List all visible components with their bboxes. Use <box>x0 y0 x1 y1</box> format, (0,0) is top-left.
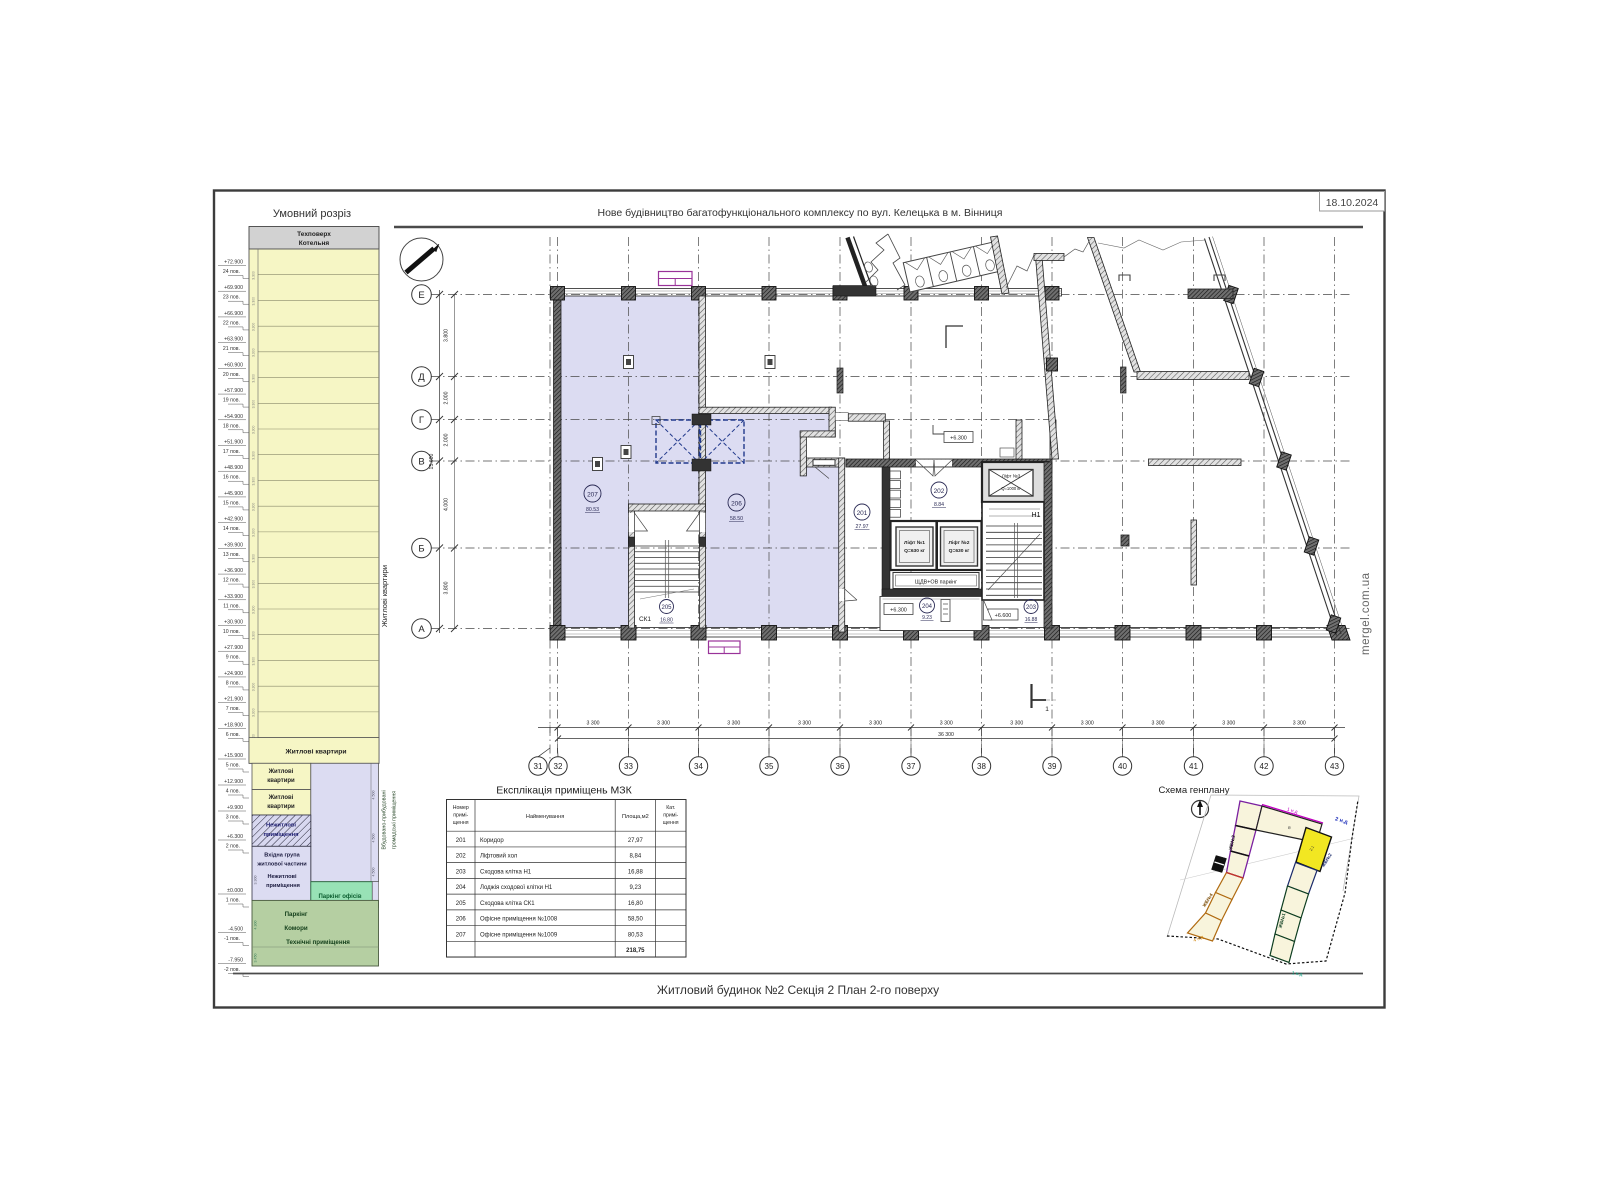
svg-text:31: 31 <box>534 762 543 771</box>
svg-text:квартири: квартири <box>267 804 295 810</box>
svg-text:3 300: 3 300 <box>798 721 811 727</box>
svg-text:+9.900: +9.900 <box>227 805 243 811</box>
svg-text:приміщення: приміщення <box>263 832 298 838</box>
svg-text:20 пов.: 20 пов. <box>223 372 240 378</box>
svg-text:16.80: 16.80 <box>660 618 673 624</box>
svg-text:3.300: 3.300 <box>252 708 256 717</box>
svg-text:+15.900: +15.900 <box>224 753 243 759</box>
svg-text:39: 39 <box>1048 762 1057 771</box>
svg-text:11 пов.: 11 пов. <box>223 603 240 609</box>
svg-text:житлової частини: житлової частини <box>256 862 307 868</box>
svg-text:3 300: 3 300 <box>1152 721 1165 727</box>
svg-text:3.300: 3.300 <box>252 605 256 614</box>
svg-text:36: 36 <box>836 762 845 771</box>
svg-text:+63.900: +63.900 <box>224 337 243 343</box>
svg-text:+57.900: +57.900 <box>224 388 243 394</box>
svg-text:Б: Б <box>418 543 424 554</box>
svg-text:Q=630 кг: Q=630 кг <box>949 548 970 554</box>
svg-text:9 пов.: 9 пов. <box>226 655 240 661</box>
svg-text:4 пов.: 4 пов. <box>226 789 240 795</box>
svg-text:202: 202 <box>456 854 467 860</box>
svg-text:Площа,м2: Площа,м2 <box>622 814 649 820</box>
svg-text:3.300: 3.300 <box>252 297 256 306</box>
svg-text:Експлікація приміщень МЗК: Експлікація приміщень МЗК <box>496 785 632 797</box>
svg-text:3.300: 3.300 <box>252 477 256 486</box>
svg-text:+42.900: +42.900 <box>224 517 243 523</box>
svg-text:Ліфтовий хол: Ліфтовий хол <box>480 853 518 860</box>
svg-text:3 пов.: 3 пов. <box>226 815 240 821</box>
svg-text:Ліфт №3: Ліфт №3 <box>1002 474 1021 479</box>
svg-text:mergel.com.ua: mergel.com.ua <box>1360 572 1372 655</box>
svg-text:3.800: 3.800 <box>444 329 450 342</box>
svg-text:24 пов.: 24 пов. <box>223 269 240 275</box>
svg-text:Паркінг: Паркінг <box>285 911 308 918</box>
svg-text:+69.900: +69.900 <box>224 285 243 291</box>
svg-text:Техповерх: Техповерх <box>297 231 331 238</box>
svg-text:+6.300: +6.300 <box>227 834 243 840</box>
svg-text:Нове будівництво багатофункціо: Нове будівництво багатофункціонального к… <box>597 207 1002 219</box>
svg-text:1: 1 <box>1045 706 1049 713</box>
svg-text:17 пов.: 17 пов. <box>223 449 240 455</box>
svg-text:-1 пов.: -1 пов. <box>224 936 240 942</box>
svg-text:Найменування: Найменування <box>526 813 564 820</box>
svg-text:15 пов.: 15 пов. <box>223 500 240 506</box>
svg-text:3.300: 3.300 <box>252 425 256 434</box>
svg-text:218,75: 218,75 <box>626 948 645 954</box>
svg-text:21 пов.: 21 пов. <box>223 346 240 352</box>
svg-text:Сходова клітка СК1: Сходова клітка СК1 <box>480 901 535 907</box>
svg-text:СК1: СК1 <box>639 616 651 623</box>
svg-text:-2 пов.: -2 пов. <box>224 967 240 973</box>
svg-text:3.300: 3.300 <box>252 503 256 512</box>
svg-text:+60.900: +60.900 <box>224 362 243 368</box>
svg-text:3.300: 3.300 <box>252 683 256 692</box>
svg-text:+6.600: +6.600 <box>995 613 1012 619</box>
svg-text:Житловий будинок №2 Секція 2 П: Житловий будинок №2 Секція 2 План 2-го п… <box>657 983 939 997</box>
svg-text:35: 35 <box>765 762 774 771</box>
svg-text:+30.900: +30.900 <box>224 620 243 626</box>
svg-text:14 пов.: 14 пов. <box>223 526 240 532</box>
svg-text:6 пов.: 6 пов. <box>226 732 240 738</box>
svg-text:36 300: 36 300 <box>938 732 954 738</box>
svg-text:Нежитлові: Нежитлові <box>266 823 296 829</box>
svg-text:205: 205 <box>661 605 672 611</box>
svg-text:Сходова клітка Н1: Сходова клітка Н1 <box>480 869 532 875</box>
svg-text:43: 43 <box>1330 762 1339 771</box>
svg-text:3.300: 3.300 <box>252 528 256 537</box>
svg-text:+21.900: +21.900 <box>224 697 243 703</box>
svg-text:щення: щення <box>663 820 679 826</box>
svg-text:Паркінг офісів: Паркінг офісів <box>318 893 361 900</box>
svg-text:1 пов.: 1 пов. <box>226 898 240 904</box>
svg-text:+39.900: +39.900 <box>224 542 243 548</box>
svg-text:3.300: 3.300 <box>252 271 256 280</box>
svg-text:Г: Г <box>419 415 424 426</box>
svg-text:Д: Д <box>418 372 425 383</box>
svg-text:3.450: 3.450 <box>254 954 258 963</box>
svg-text:+18.900: +18.900 <box>224 722 243 728</box>
svg-text:Житлові: Житлові <box>268 795 294 801</box>
svg-text:34: 34 <box>694 762 703 771</box>
svg-text:3 300: 3 300 <box>727 721 740 727</box>
svg-text:Q=1000 кг: Q=1000 кг <box>1001 486 1021 491</box>
svg-text:58,50: 58,50 <box>628 917 644 923</box>
svg-text:3.300: 3.300 <box>252 348 256 357</box>
svg-text:42: 42 <box>1260 762 1269 771</box>
svg-text:23 пов.: 23 пов. <box>223 295 240 301</box>
svg-text:Офісне приміщення №1008: Офісне приміщення №1008 <box>480 916 558 923</box>
svg-text:5 пов.: 5 пов. <box>226 763 240 769</box>
svg-text:+66.900: +66.900 <box>224 311 243 317</box>
svg-text:+24.900: +24.900 <box>224 671 243 677</box>
svg-text:+33.900: +33.900 <box>224 594 243 600</box>
svg-text:Технічні приміщення: Технічні приміщення <box>286 939 350 946</box>
svg-text:Житлові: Житлові <box>268 769 294 775</box>
svg-text:32: 32 <box>554 762 563 771</box>
svg-text:3 300: 3 300 <box>1010 721 1023 727</box>
svg-text:2 пов.: 2 пов. <box>226 844 240 850</box>
svg-text:207: 207 <box>587 491 598 498</box>
svg-text:203: 203 <box>456 869 467 875</box>
svg-text:16.88: 16.88 <box>1025 617 1038 623</box>
svg-text:4.300: 4.300 <box>254 921 258 930</box>
svg-text:Житлові квартири: Житлові квартири <box>380 565 389 627</box>
svg-text:19 пов.: 19 пов. <box>223 398 240 404</box>
svg-text:3.800: 3.800 <box>444 581 450 594</box>
svg-text:Котельня: Котельня <box>299 240 330 247</box>
svg-text:примі-: примі- <box>453 813 468 819</box>
svg-text:3 300: 3 300 <box>1081 721 1094 727</box>
svg-text:3.300: 3.300 <box>252 400 256 409</box>
svg-text:примі-: примі- <box>663 813 678 819</box>
svg-text:3.300: 3.300 <box>252 554 256 563</box>
svg-text:201: 201 <box>456 838 467 844</box>
svg-text:18 пов.: 18 пов. <box>223 423 240 429</box>
svg-text:+45.900: +45.900 <box>224 491 243 497</box>
svg-text:3 300: 3 300 <box>587 721 600 727</box>
svg-text:3.300: 3.300 <box>252 657 256 666</box>
svg-text:4.500: 4.500 <box>372 868 376 877</box>
svg-text:40: 40 <box>1118 762 1127 771</box>
svg-text:207: 207 <box>456 932 467 938</box>
svg-text:+36.900: +36.900 <box>224 568 243 574</box>
svg-text:Житлові квартири: Житлові квартири <box>284 748 346 756</box>
svg-text:Вхідна група: Вхідна група <box>264 853 300 859</box>
svg-text:4.500: 4.500 <box>372 834 376 843</box>
svg-text:16,88: 16,88 <box>628 869 644 875</box>
svg-text:Н1: Н1 <box>1032 512 1041 519</box>
svg-text:Офісне приміщення №1009: Офісне приміщення №1009 <box>480 931 558 938</box>
svg-text:3.300: 3.300 <box>252 374 256 383</box>
svg-text:Е: Е <box>418 290 424 301</box>
svg-text:Лоджія сходової клітки Н1: Лоджія сходової клітки Н1 <box>480 885 553 891</box>
svg-text:+6.300: +6.300 <box>890 608 907 614</box>
svg-text:Нежитлові: Нежитлові <box>267 874 296 880</box>
svg-text:203: 203 <box>1026 605 1037 611</box>
svg-text:205: 205 <box>456 901 467 907</box>
svg-text:громадські приміщення: громадські приміщення <box>392 791 398 850</box>
svg-text:Схема генплану: Схема генплану <box>1159 785 1230 796</box>
svg-text:206: 206 <box>731 500 742 507</box>
svg-text:3.300: 3.300 <box>252 323 256 332</box>
svg-text:80.53: 80.53 <box>586 507 599 513</box>
svg-text:10 пов.: 10 пов. <box>223 629 240 635</box>
svg-text:37: 37 <box>907 762 916 771</box>
svg-text:приміщення: приміщення <box>266 883 300 889</box>
svg-text:18.10.2024: 18.10.2024 <box>1326 197 1379 209</box>
svg-text:12 пов.: 12 пов. <box>223 578 240 584</box>
svg-text:Ліфт №1: Ліфт №1 <box>904 539 925 546</box>
svg-text:Коридор: Коридор <box>480 838 504 844</box>
svg-text:3 300: 3 300 <box>1222 721 1235 727</box>
svg-text:Умовний розріз: Умовний розріз <box>273 208 351 220</box>
svg-text:80,53: 80,53 <box>628 932 644 938</box>
svg-text:9.23: 9.23 <box>922 615 932 621</box>
svg-text:15.600: 15.600 <box>429 453 435 469</box>
svg-text:3.300: 3.300 <box>252 580 256 589</box>
svg-text:+48.900: +48.900 <box>224 465 243 471</box>
svg-text:58.50: 58.50 <box>730 516 743 522</box>
svg-text:-4.500: -4.500 <box>228 927 243 933</box>
svg-text:Ліфт №2: Ліфт №2 <box>949 539 970 546</box>
svg-text:ЩДВ+ОВ паркінг: ЩДВ+ОВ паркінг <box>915 580 957 586</box>
svg-text:Номер: Номер <box>453 805 469 811</box>
svg-text:13 пов.: 13 пов. <box>223 552 240 558</box>
svg-text:+51.900: +51.900 <box>224 440 243 446</box>
svg-text:7 пов.: 7 пов. <box>226 706 240 712</box>
svg-text:201: 201 <box>857 510 868 517</box>
svg-text:Комори: Комори <box>284 925 308 932</box>
svg-text:206: 206 <box>456 917 467 923</box>
svg-text:+12.900: +12.900 <box>224 779 243 785</box>
svg-text:+27.900: +27.900 <box>224 645 243 651</box>
svg-text:22 пов.: 22 пов. <box>223 320 240 326</box>
svg-text:3 300: 3 300 <box>1293 721 1306 727</box>
svg-text:4.500: 4.500 <box>372 791 376 800</box>
svg-text:9,23: 9,23 <box>630 885 642 891</box>
svg-text:2.000: 2.000 <box>444 391 450 404</box>
svg-text:204: 204 <box>456 885 467 891</box>
svg-text:27,97: 27,97 <box>628 838 644 844</box>
svg-text:16 пов.: 16 пов. <box>223 475 240 481</box>
svg-text:В: В <box>418 456 424 467</box>
svg-text:Кат.: Кат. <box>666 805 675 811</box>
svg-text:8,84: 8,84 <box>630 854 642 860</box>
svg-text:+72.900: +72.900 <box>224 260 243 266</box>
svg-text:3 300: 3 300 <box>657 721 670 727</box>
svg-text:3.300: 3.300 <box>254 876 258 885</box>
svg-text:202: 202 <box>934 488 945 495</box>
svg-text:квартири: квартири <box>267 778 295 784</box>
svg-text:41: 41 <box>1189 762 1198 771</box>
svg-text:-7.950: -7.950 <box>228 958 243 964</box>
svg-text:А: А <box>418 624 425 635</box>
svg-text:8.84: 8.84 <box>934 502 944 508</box>
svg-text:2.000: 2.000 <box>444 433 450 446</box>
svg-text:16,80: 16,80 <box>628 901 644 907</box>
svg-text:33: 33 <box>624 762 633 771</box>
svg-text:4.000: 4.000 <box>444 498 450 511</box>
svg-text:3 300: 3 300 <box>869 721 882 727</box>
svg-text:3.300: 3.300 <box>252 631 256 640</box>
svg-text:Q=630 кг: Q=630 кг <box>904 548 925 554</box>
svg-text:щення: щення <box>453 820 469 826</box>
svg-text:Вбудовано-прибудовані: Вбудовано-прибудовані <box>382 790 388 849</box>
svg-text:204: 204 <box>922 604 933 610</box>
svg-text:8 пов.: 8 пов. <box>226 680 240 686</box>
svg-text:3.300: 3.300 <box>252 451 256 460</box>
svg-text:+6.300: +6.300 <box>950 436 967 442</box>
svg-text:±0.000: ±0.000 <box>227 888 243 894</box>
svg-text:38: 38 <box>977 762 986 771</box>
svg-text:27.97: 27.97 <box>856 524 869 530</box>
svg-text:3 300: 3 300 <box>940 721 953 727</box>
svg-text:+54.900: +54.900 <box>224 414 243 420</box>
